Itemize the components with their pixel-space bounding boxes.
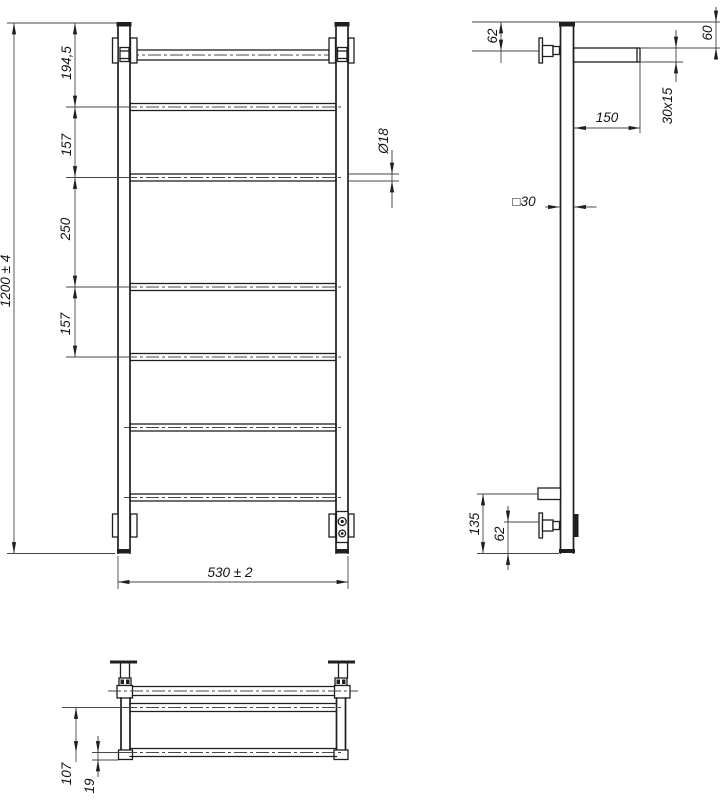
dim-label-height: 1200 ± 4 bbox=[0, 255, 13, 307]
side-bottom-fittings bbox=[538, 488, 579, 538]
dim-front-rung-chain: 194,5 157 250 157 bbox=[58, 23, 133, 357]
dim-label-post-profile: □30 bbox=[512, 194, 536, 209]
dim-label-gap-2: 250 bbox=[58, 217, 73, 241]
heating-element-box bbox=[337, 512, 349, 543]
top-view: 107 19 bbox=[59, 661, 358, 794]
dim-label-width: 530 ± 2 bbox=[208, 565, 253, 580]
dim-bar-profile: 30x15 bbox=[640, 30, 683, 124]
dim-post-profile: □30 bbox=[512, 194, 596, 209]
dim-side-bracket-offset: 62 bbox=[485, 22, 501, 63]
dim-label-rung-diameter: Ø18 bbox=[376, 128, 391, 155]
dim-front-height: 1200 ± 4 bbox=[0, 23, 117, 554]
front-bottom-brackets bbox=[113, 514, 355, 537]
dim-label-depth: 107 bbox=[59, 762, 74, 785]
dim-label-gap-3: 157 bbox=[58, 312, 73, 335]
dim-label-bar-offset-top: 60 bbox=[700, 25, 715, 41]
dim-front-width: 530 ± 2 bbox=[118, 556, 348, 589]
front-rungs bbox=[124, 104, 342, 502]
top-left-bracket bbox=[110, 661, 137, 699]
dim-bottom-valve-offset: 62 bbox=[492, 506, 539, 570]
front-posts bbox=[117, 22, 350, 554]
towel-rail-technical-drawing: 1200 ± 4 194,5 157 250 157 Ø18 bbox=[0, 0, 721, 800]
dim-side-bar-offset: 60 bbox=[640, 7, 720, 60]
front-view: 1200 ± 4 194,5 157 250 157 Ø18 bbox=[0, 22, 399, 589]
side-view: 62 60 30x15 150 □30 bbox=[467, 7, 720, 570]
front-top-bar bbox=[113, 38, 355, 63]
dim-bar-length: 150 bbox=[575, 62, 641, 133]
dim-label-gap-1: 157 bbox=[59, 133, 74, 156]
dim-label-bottom-bracket-offset: 135 bbox=[467, 512, 482, 535]
dim-label-bottom-valve-offset: 62 bbox=[492, 526, 507, 542]
dim-top-depth: 107 bbox=[59, 708, 124, 786]
dim-rung-diameter: Ø18 bbox=[349, 128, 400, 208]
dim-label-bar-profile: 30x15 bbox=[660, 87, 675, 124]
dim-label-bracket-offset-top: 62 bbox=[485, 28, 500, 44]
dim-label-offset: 19 bbox=[82, 778, 97, 794]
top-view-frame bbox=[108, 687, 358, 760]
dim-top-offset: 19 bbox=[82, 736, 124, 794]
dim-label-bar-length: 150 bbox=[596, 110, 619, 125]
drawing-page: 1200 ± 4 194,5 157 250 157 Ø18 bbox=[0, 0, 721, 800]
side-post bbox=[472, 22, 720, 553]
top-right-bracket bbox=[328, 661, 355, 699]
side-top-bar bbox=[574, 48, 641, 62]
dim-label-top-segment: 194,5 bbox=[59, 46, 74, 80]
